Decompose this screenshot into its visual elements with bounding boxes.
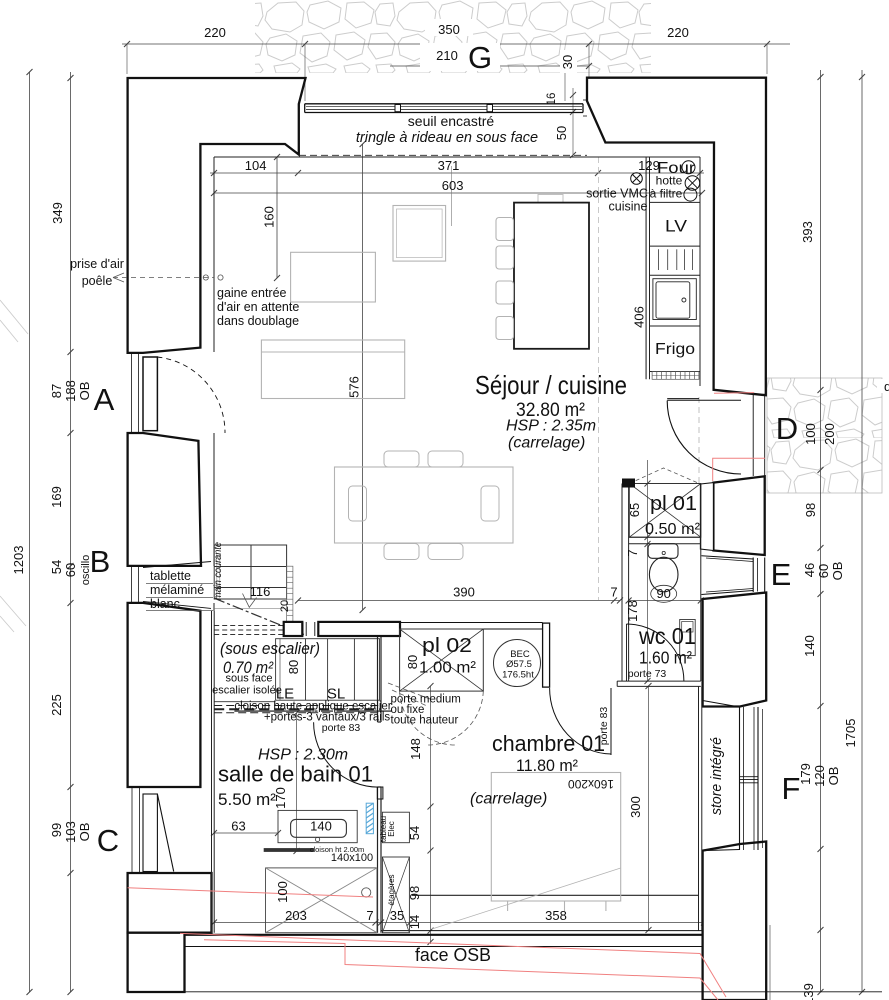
svg-text:148: 148	[408, 738, 423, 760]
svg-text:sous face: sous face	[225, 673, 272, 685]
svg-text:50: 50	[554, 126, 569, 140]
svg-text:100: 100	[803, 423, 818, 445]
svg-text:OB: OB	[826, 767, 841, 786]
svg-text:60: 60	[816, 564, 831, 578]
svg-text:140: 140	[310, 819, 332, 834]
svg-text:1.60 m²: 1.60 m²	[639, 648, 692, 668]
svg-text:OB: OB	[77, 382, 92, 401]
svg-text:406: 406	[632, 306, 647, 328]
svg-text:hotte: hotte	[656, 174, 683, 188]
svg-text:toute hauteur: toute hauteur	[391, 715, 459, 727]
svg-text:HSP : 2.35m: HSP : 2.35m	[506, 418, 596, 435]
svg-text:99: 99	[49, 823, 64, 837]
svg-text:576: 576	[347, 376, 362, 398]
svg-text:A: A	[94, 382, 115, 417]
svg-text:Elec: Elec	[387, 821, 396, 837]
svg-text:(carrelage): (carrelage)	[508, 435, 585, 452]
svg-text:7: 7	[625, 549, 640, 556]
svg-text:G: G	[468, 40, 492, 75]
svg-text:porte 83: porte 83	[598, 707, 610, 746]
svg-text:7: 7	[610, 585, 617, 600]
svg-text:pl 01: pl 01	[650, 493, 697, 515]
svg-text:Ø57.5: Ø57.5	[506, 659, 532, 670]
svg-text:60: 60	[63, 563, 78, 577]
svg-text:chambre 01: chambre 01	[492, 731, 605, 756]
svg-text:d'air en attente: d'air en attente	[217, 300, 299, 314]
svg-text:139: 139	[801, 983, 816, 1000]
svg-text:16: 16	[546, 93, 558, 106]
svg-text:salle de bain 01: salle de bain 01	[218, 762, 373, 787]
svg-text:140: 140	[802, 635, 817, 657]
svg-text:220: 220	[204, 25, 226, 40]
svg-text:350: 350	[438, 22, 460, 37]
svg-text:349: 349	[50, 202, 65, 224]
svg-text:porte 73: porte 73	[628, 668, 667, 680]
svg-text:63: 63	[231, 819, 245, 834]
svg-text:35: 35	[390, 908, 404, 923]
svg-text:358: 358	[545, 908, 567, 923]
svg-text:pl 02: pl 02	[422, 635, 472, 657]
svg-text:65: 65	[627, 503, 642, 517]
svg-text:d: d	[884, 379, 889, 394]
svg-text:11.80 m²: 11.80 m²	[516, 756, 578, 775]
svg-text:104: 104	[245, 158, 267, 173]
svg-text:LV: LV	[665, 218, 687, 236]
svg-text:OB: OB	[830, 562, 845, 581]
svg-text:Frigo: Frigo	[655, 341, 695, 358]
svg-text:54: 54	[407, 826, 422, 840]
svg-text:C: C	[97, 823, 119, 858]
svg-text:20: 20	[279, 600, 291, 612]
svg-text:wc 01: wc 01	[638, 623, 696, 649]
svg-text:dans doublage: dans doublage	[217, 314, 299, 328]
svg-text:1.00 m²: 1.00 m²	[419, 660, 477, 677]
svg-text:225: 225	[49, 694, 64, 716]
svg-text:5.50 m²: 5.50 m²	[218, 790, 276, 809]
svg-text:140x100: 140x100	[331, 852, 373, 864]
svg-text:160: 160	[262, 206, 277, 228]
svg-text:à filtre: à filtre	[650, 187, 683, 201]
svg-text:D: D	[776, 411, 798, 446]
svg-text:54: 54	[49, 560, 64, 574]
svg-text:178: 178	[625, 600, 640, 622]
svg-text:escalier isolée: escalier isolée	[212, 685, 282, 697]
svg-text:0.50 m²: 0.50 m²	[645, 521, 701, 538]
svg-text:tablette: tablette	[150, 569, 191, 583]
svg-text:90: 90	[656, 586, 670, 601]
svg-text:poêle: poêle	[82, 274, 113, 288]
svg-text:OB: OB	[77, 823, 92, 842]
svg-text:gaine entrée: gaine entrée	[217, 286, 287, 300]
svg-text:seuil encastré: seuil encastré	[408, 113, 495, 129]
svg-text:300: 300	[628, 796, 643, 818]
svg-text:14: 14	[407, 915, 422, 929]
svg-text:prise d'air: prise d'air	[70, 257, 124, 271]
svg-text:tringle à rideau en sous face: tringle à rideau en sous face	[356, 130, 538, 146]
svg-text:603: 603	[442, 178, 464, 193]
svg-text:98: 98	[407, 886, 422, 900]
svg-text:210: 210	[436, 48, 458, 63]
svg-text:sortie VMC: sortie VMC	[586, 187, 648, 201]
svg-text:98: 98	[803, 503, 818, 517]
svg-text:87: 87	[49, 384, 64, 398]
svg-text:face OSB: face OSB	[415, 945, 491, 965]
svg-text:80: 80	[286, 660, 301, 674]
svg-text:B: B	[90, 544, 111, 579]
svg-text:100: 100	[275, 881, 290, 903]
svg-text:220: 220	[667, 25, 689, 40]
svg-text:120: 120	[812, 765, 827, 787]
svg-text:(sous escalier): (sous escalier)	[220, 639, 320, 658]
svg-text:cuisine: cuisine	[609, 200, 648, 214]
svg-text:176.5ht: 176.5ht	[502, 670, 534, 681]
svg-text:179: 179	[798, 763, 813, 785]
svg-text:203: 203	[285, 908, 307, 923]
svg-text:80: 80	[405, 655, 420, 669]
svg-text:mélaminé: mélaminé	[150, 583, 204, 597]
svg-text:116: 116	[250, 584, 271, 599]
svg-text:blanc: blanc	[150, 597, 180, 611]
svg-text:169: 169	[49, 486, 64, 508]
svg-text:103: 103	[63, 821, 78, 843]
svg-text:371: 371	[438, 158, 460, 173]
svg-text:store intégré: store intégré	[708, 737, 725, 815]
svg-text:oscillo: oscillo	[80, 555, 92, 586]
svg-text:170: 170	[273, 787, 288, 809]
svg-text:390: 390	[453, 585, 475, 600]
svg-text:393: 393	[800, 221, 815, 243]
svg-text:Séjour / cuisine: Séjour / cuisine	[475, 370, 627, 400]
svg-text:1203: 1203	[11, 546, 26, 575]
svg-text:188: 188	[63, 380, 78, 402]
svg-text:étagères: étagères	[387, 874, 396, 905]
svg-text:200: 200	[822, 423, 837, 445]
svg-text:160x200: 160x200	[568, 777, 614, 791]
svg-text:30: 30	[560, 55, 575, 69]
svg-text:1705: 1705	[843, 719, 858, 748]
svg-text:E: E	[771, 557, 792, 592]
svg-text:(carrelage): (carrelage)	[470, 791, 547, 808]
svg-text:7: 7	[366, 908, 373, 923]
svg-text:porte 83: porte 83	[322, 722, 361, 734]
svg-text:main courante: main courante	[212, 542, 224, 600]
svg-text:46: 46	[802, 563, 817, 577]
